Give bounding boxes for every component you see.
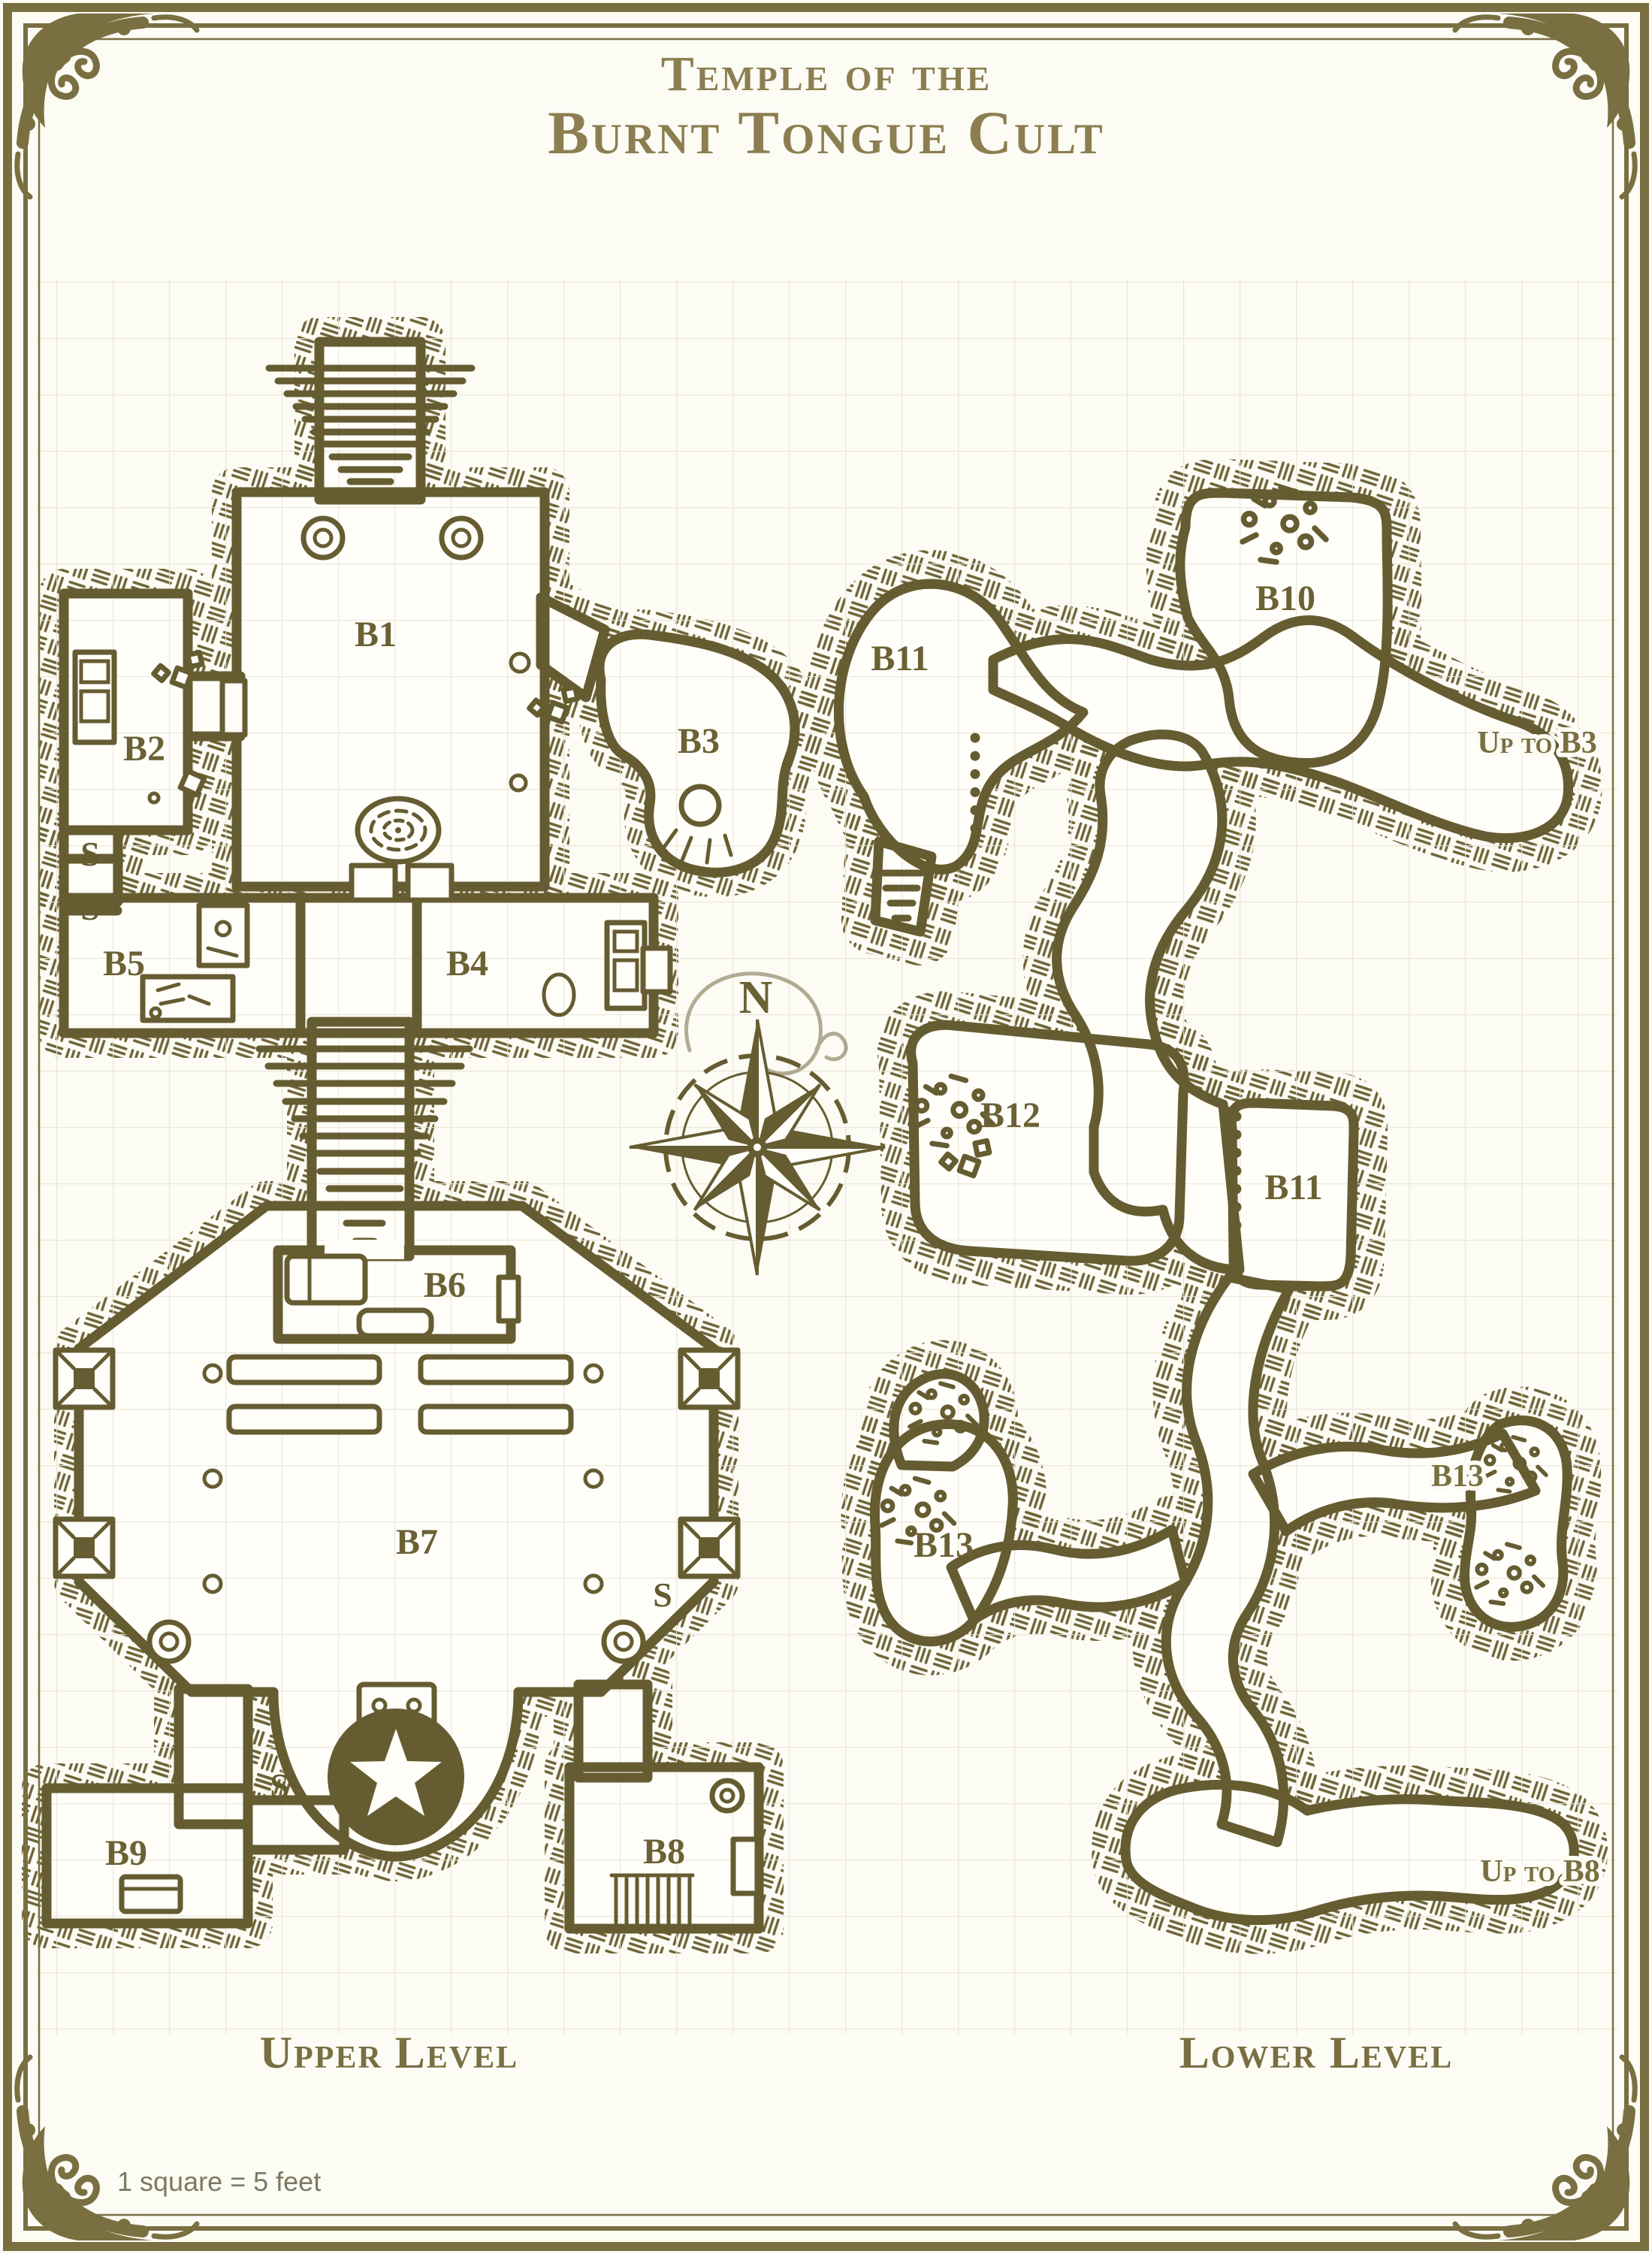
room-label-b11-second: B11 xyxy=(1264,1168,1322,1207)
door-icon xyxy=(352,866,395,900)
shelf-icon xyxy=(643,948,670,992)
table-icon xyxy=(143,977,233,1020)
room-label-b13-left: B13 xyxy=(914,1525,974,1565)
room-label-b3: B3 xyxy=(678,721,720,761)
room-label-b8: B8 xyxy=(643,1832,685,1872)
door-icon xyxy=(408,866,452,900)
room-label-b5: B5 xyxy=(103,944,145,983)
pillar-icon xyxy=(304,518,343,557)
secret-door-mark: S xyxy=(80,889,100,927)
pillar-icon xyxy=(681,1519,738,1576)
caption-lower-level: Lower Level xyxy=(1179,2028,1453,2077)
map-title-line1: Temple of the xyxy=(661,47,992,101)
pillar-icon xyxy=(56,1519,113,1576)
room-label-b12: B12 xyxy=(980,1095,1040,1135)
map-title-line2: Burnt Tongue Cult xyxy=(548,98,1105,167)
pillar-icon xyxy=(149,1622,189,1661)
room-label-b2: B2 xyxy=(123,729,165,769)
bench-icon xyxy=(229,1406,379,1432)
spiral-well-icon xyxy=(358,799,439,862)
room-b9-furniture xyxy=(122,1877,180,1911)
annotation-up-to-b8: Up to B8 xyxy=(1480,1854,1599,1889)
pillar-icon xyxy=(56,1350,113,1407)
barrel-icon xyxy=(712,1781,742,1811)
pillar-icon xyxy=(681,1350,738,1407)
secret-door-mark: S xyxy=(653,1576,672,1614)
room-label-b6: B6 xyxy=(424,1265,466,1305)
secret-door-mark: S xyxy=(270,1766,289,1805)
chest-icon xyxy=(122,1877,180,1911)
bench-icon xyxy=(229,1357,379,1382)
scale-note: 1 square = 5 feet xyxy=(117,2166,321,2197)
bench-icon xyxy=(421,1406,571,1432)
dungeon-map: N Temple of the Burnt Tongue Cult B1 B2 … xyxy=(0,0,1652,2254)
room-label-b1: B1 xyxy=(355,615,397,654)
bed-icon xyxy=(287,1256,365,1303)
room-label-b9: B9 xyxy=(105,1833,147,1873)
room-label-b4: B4 xyxy=(446,944,488,983)
pillar-icon xyxy=(442,518,481,557)
couch-icon xyxy=(359,1310,431,1336)
bench-icon xyxy=(421,1357,571,1382)
door-icon xyxy=(499,1277,518,1321)
room-label-b11: B11 xyxy=(871,639,929,678)
star-dais-icon xyxy=(330,1711,462,1843)
door-icon xyxy=(222,681,245,735)
caption-upper-level: Upper Level xyxy=(260,2028,518,2077)
annotation-up-to-b3: Up to B3 xyxy=(1477,726,1596,760)
cabinet-icon xyxy=(733,1839,757,1893)
room-label-b7: B7 xyxy=(396,1522,438,1562)
secret-door-mark: S xyxy=(80,835,100,873)
compass-north-label: N xyxy=(739,972,773,1023)
pit-icon xyxy=(681,787,719,824)
pillar-icon xyxy=(604,1622,643,1661)
map-page: N Temple of the Burnt Tongue Cult B1 B2 … xyxy=(0,0,1652,2254)
room-label-b10: B10 xyxy=(1255,579,1315,618)
room-label-b13-right: B13 xyxy=(1431,1459,1484,1494)
